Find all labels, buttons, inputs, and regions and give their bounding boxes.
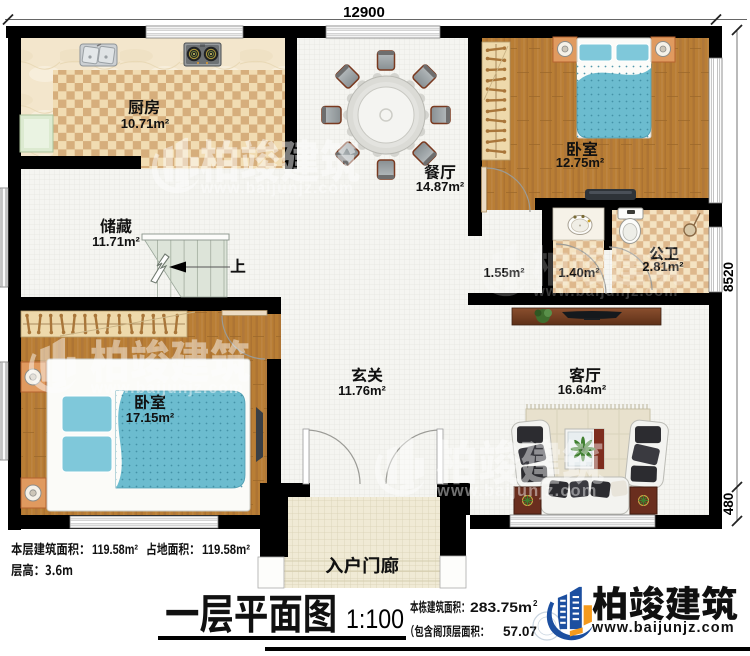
svg-text:11.76m²: 11.76m² bbox=[338, 383, 386, 398]
svg-text:www.baijunjz.com: www.baijunjz.com bbox=[90, 380, 244, 397]
svg-text:119.58m²: 119.58m² bbox=[92, 542, 138, 557]
svg-text:10.71m²: 10.71m² bbox=[121, 116, 170, 131]
svg-text:480: 480 bbox=[721, 493, 736, 516]
svg-text:16.64m²: 16.64m² bbox=[558, 382, 607, 397]
svg-text:11.71m²: 11.71m² bbox=[92, 234, 140, 249]
svg-text:119.58m²: 119.58m² bbox=[202, 542, 250, 557]
svg-text:www.baijunjz.com: www.baijunjz.com bbox=[200, 180, 354, 197]
svg-text:www.baijunjz.com: www.baijunjz.com bbox=[436, 482, 598, 500]
svg-text:2: 2 bbox=[533, 599, 538, 608]
svg-text:12900: 12900 bbox=[343, 4, 385, 21]
svg-text:www.baijunjz.com: www.baijunjz.com bbox=[591, 620, 735, 636]
svg-text:57.07: 57.07 bbox=[503, 624, 537, 639]
svg-text:17.15m²: 17.15m² bbox=[126, 410, 175, 425]
svg-text:283.75m: 283.75m bbox=[470, 600, 532, 615]
svg-text:8520: 8520 bbox=[721, 262, 736, 292]
svg-text:12.75m²: 12.75m² bbox=[556, 155, 605, 170]
svg-text:1:100: 1:100 bbox=[346, 604, 404, 634]
svg-text:14.87m²: 14.87m² bbox=[416, 179, 465, 194]
svg-text:www.baijunjz.com: www.baijunjz.com bbox=[532, 284, 678, 300]
